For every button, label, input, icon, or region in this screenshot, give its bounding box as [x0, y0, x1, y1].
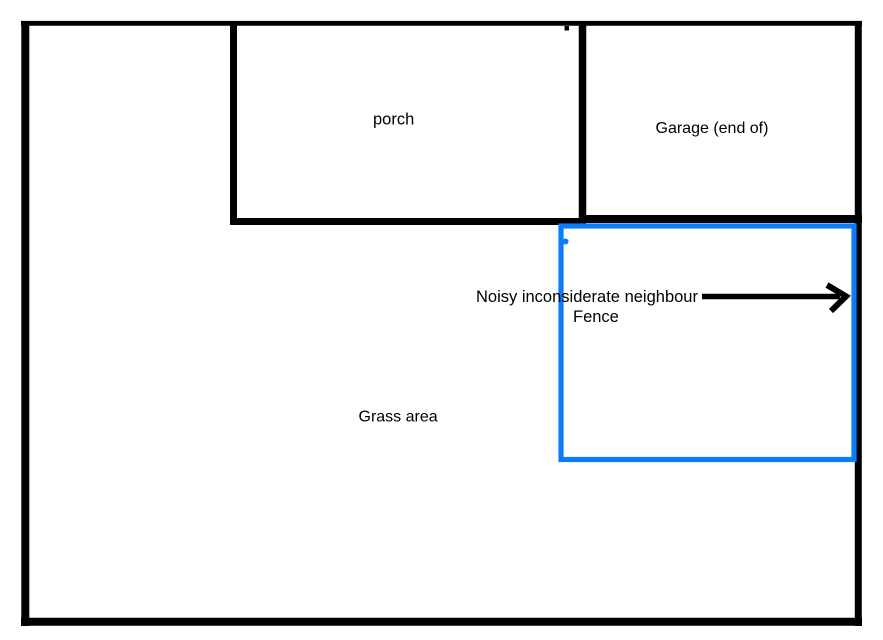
svg-text:Noisy inconsiderate neighbour: Noisy inconsiderate neighbour	[476, 288, 698, 306]
svg-text:Garage (end of): Garage (end of)	[656, 120, 769, 137]
svg-text:Fence: Fence	[573, 308, 619, 326]
svg-text:Grass area: Grass area	[359, 409, 438, 426]
svg-text:porch: porch	[373, 111, 414, 129]
